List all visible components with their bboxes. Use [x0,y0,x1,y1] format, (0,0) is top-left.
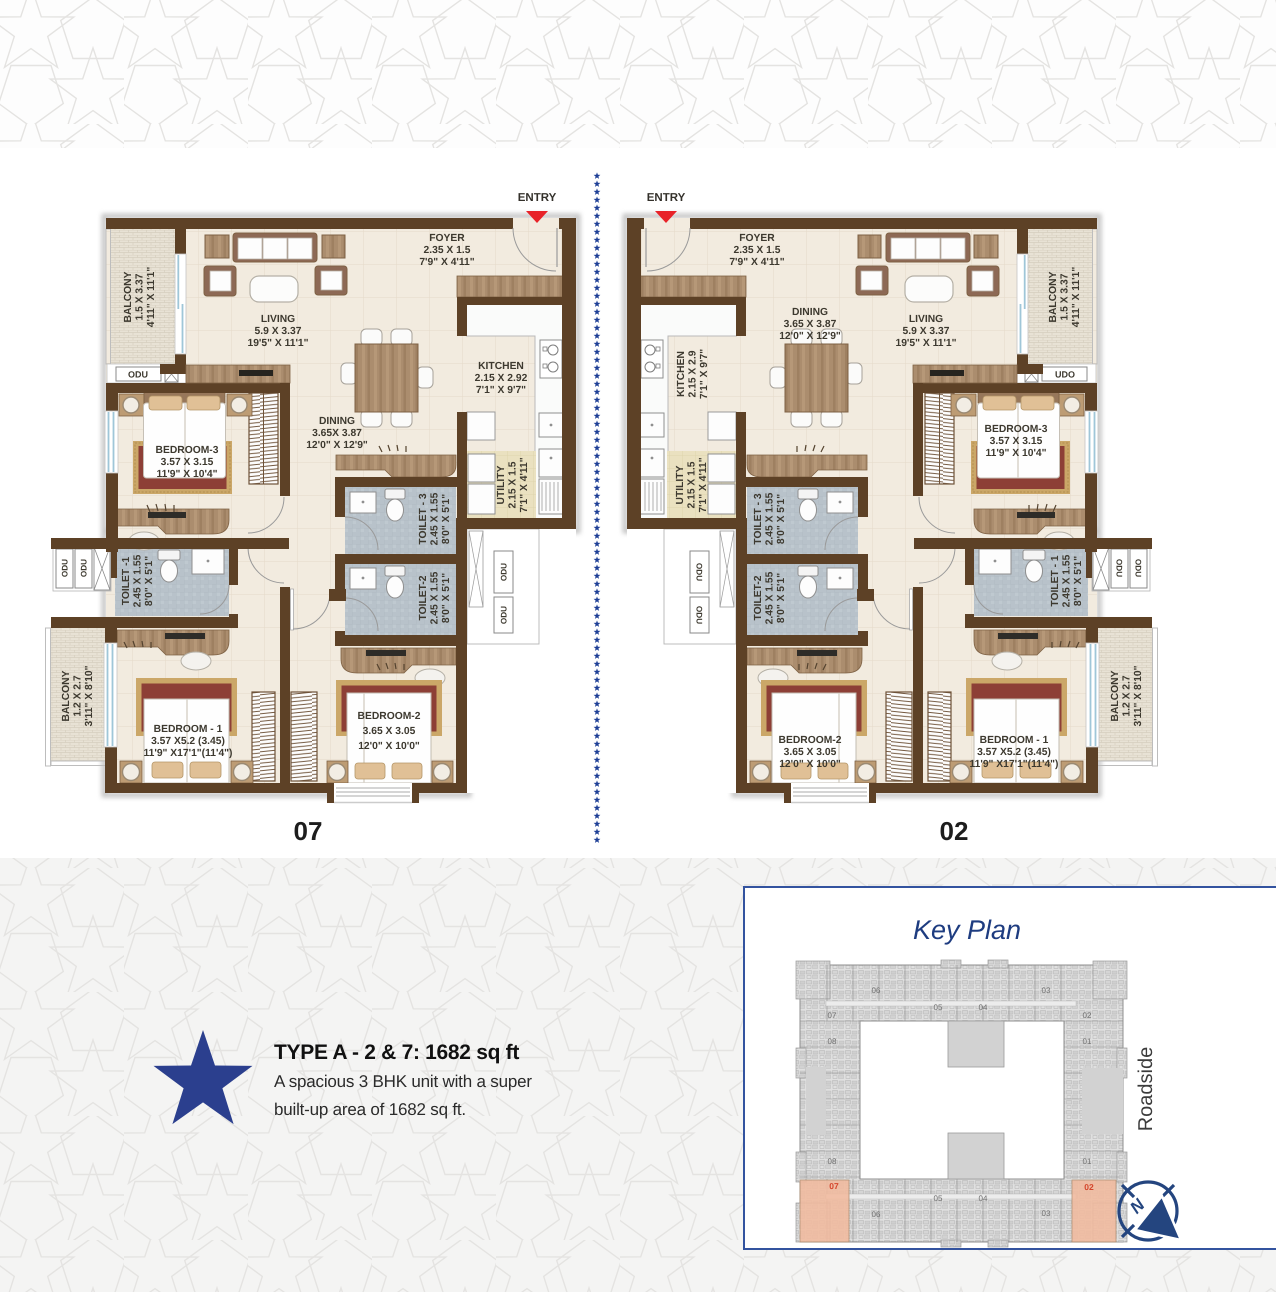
svg-text:2.45 X 1.55: 2.45 X 1.55 [765,571,776,624]
svg-text:4'11" X 11'1": 4'11" X 11'1" [1071,267,1082,328]
svg-text:02: 02 [1083,1011,1092,1020]
svg-text:7'9" X 4'11": 7'9" X 4'11" [729,257,784,268]
svg-text:KITCHEN: KITCHEN [676,351,687,397]
svg-text:02: 02 [940,816,969,846]
svg-text:ODU: ODU [80,559,89,577]
svg-text:BEDROOM-2: BEDROOM-2 [358,711,421,722]
svg-text:TOILET - 1: TOILET - 1 [1050,555,1061,607]
svg-text:ODU: ODU [1114,559,1123,577]
svg-text:UDO: UDO [1055,370,1075,380]
svg-text:BALCONY: BALCONY [61,670,72,721]
svg-text:3.57 X5.2 (3.45): 3.57 X5.2 (3.45) [977,747,1051,758]
svg-text:04: 04 [979,1003,988,1012]
svg-text:ODU: ODU [1133,559,1142,577]
svg-text:2.45 X 1.55: 2.45 X 1.55 [765,492,776,545]
svg-text:2.15 X 1.5: 2.15 X 1.5 [687,461,698,508]
svg-text:3.57 X 3.15: 3.57 X 3.15 [161,457,214,468]
svg-text:3.65 X 3.87: 3.65 X 3.87 [784,319,837,330]
svg-text:ODU: ODU [500,606,509,624]
svg-text:3'11" X 8'10": 3'11" X 8'10" [1133,665,1144,726]
svg-text:7'1" X 9'7": 7'1" X 9'7" [699,349,710,399]
svg-text:12'0" X 10'0": 12'0" X 10'0" [779,759,841,770]
svg-text:11'9" X 10'4": 11'9" X 10'4" [156,469,217,480]
svg-text:FOYER: FOYER [429,233,465,244]
svg-text:2.15 X 1.5: 2.15 X 1.5 [508,461,519,508]
svg-text:BEDROOM-3: BEDROOM-3 [985,424,1048,435]
svg-text:12'0" X 10'0": 12'0" X 10'0" [358,741,420,752]
svg-text:2.45 X 1.55: 2.45 X 1.55 [430,492,441,545]
svg-text:05: 05 [934,1003,943,1012]
svg-text:04: 04 [979,1194,988,1203]
svg-text:08: 08 [828,1157,837,1166]
svg-text:ODU: ODU [128,370,148,380]
svg-text:8'0" X 5'1": 8'0" X 5'1" [441,494,452,544]
svg-text:7'1" X 4'11": 7'1" X 4'11" [698,457,709,512]
svg-text:2.15 X 2.92: 2.15 X 2.92 [475,373,528,384]
svg-text:DINING: DINING [319,416,355,427]
svg-text:ENTRY: ENTRY [647,192,686,204]
svg-text:ODU: ODU [61,559,70,577]
svg-text:UTILITY: UTILITY [675,465,686,504]
svg-text:7'9" X 4'11": 7'9" X 4'11" [419,257,474,268]
svg-text:ODU: ODU [694,606,703,624]
svg-text:8'0" X 5'1": 8'0" X 5'1" [441,573,452,623]
svg-text:19'5" X 11'1": 19'5" X 11'1" [895,338,956,349]
svg-text:BALCONY: BALCONY [123,271,134,322]
svg-text:7'1" X 4'11": 7'1" X 4'11" [519,457,530,512]
svg-text:4'11" X 11'1": 4'11" X 11'1" [146,267,157,328]
svg-text:Key Plan: Key Plan [913,915,1021,945]
svg-text:7'1" X 9'7": 7'1" X 9'7" [476,385,526,396]
svg-text:2.45 X 1.55: 2.45 X 1.55 [430,571,441,624]
svg-text:LIVING: LIVING [261,314,295,325]
svg-text:UTILITY: UTILITY [496,465,507,504]
svg-text:LIVING: LIVING [909,314,943,325]
svg-text:ODU: ODU [500,563,509,581]
svg-text:3.65X 3.87: 3.65X 3.87 [312,428,362,439]
svg-text:8'0" X 5'1": 8'0" X 5'1" [144,556,155,606]
svg-text:08: 08 [828,1037,837,1046]
svg-text:TOILET -1: TOILET -1 [121,557,132,606]
svg-text:TOILET-2: TOILET-2 [753,575,764,620]
svg-text:BEDROOM-3: BEDROOM-3 [156,445,219,456]
svg-text:03: 03 [1042,1209,1051,1218]
svg-text:1.2 X 2.7: 1.2 X 2.7 [73,675,84,716]
svg-text:1.5 X 3.37: 1.5 X 3.37 [1060,273,1071,320]
svg-text:06: 06 [872,986,881,995]
svg-text:3'11" X 8'10": 3'11" X 8'10" [84,665,95,726]
svg-text:8'0" X 5'1": 8'0" X 5'1" [1073,556,1084,606]
svg-text:3.65 X 3.05: 3.65 X 3.05 [363,726,416,737]
svg-text:BALCONY: BALCONY [1110,670,1121,721]
svg-text:2.35 X 1.5: 2.35 X 1.5 [734,245,781,256]
svg-text:19'5" X 11'1": 19'5" X 11'1" [247,338,308,349]
svg-text:8'0" X 5'1": 8'0" X 5'1" [776,573,787,623]
svg-text:06: 06 [872,1210,881,1219]
svg-text:2.45 X 1.55: 2.45 X 1.55 [133,554,144,607]
svg-text:BEDROOM-2: BEDROOM-2 [779,735,842,746]
svg-text:Roadside: Roadside [1135,1047,1157,1132]
svg-text:1.5 X 3.37: 1.5 X 3.37 [135,273,146,320]
svg-text:2.45 X 1.55: 2.45 X 1.55 [1062,554,1073,607]
svg-text:07: 07 [828,1011,837,1020]
svg-text:11'9" X17'1"(11'4"): 11'9" X17'1"(11'4") [144,748,233,759]
svg-text:built-up area of 1682 sq ft.: built-up area of 1682 sq ft. [274,1100,466,1119]
svg-text:3.57 X5.2 (3.45): 3.57 X5.2 (3.45) [151,736,225,747]
svg-text:07: 07 [829,1181,839,1191]
svg-text:11'9" X17'1"(11'4"): 11'9" X17'1"(11'4") [970,759,1059,770]
svg-text:TOILET - 3: TOILET - 3 [753,493,764,545]
svg-text:07: 07 [294,816,323,846]
svg-text:2.35 X 1.5: 2.35 X 1.5 [424,245,471,256]
svg-text:BALCONY: BALCONY [1048,271,1059,322]
svg-text:BEDROOM - 1: BEDROOM - 1 [154,724,223,735]
svg-text:2.15 X 2.9: 2.15 X 2.9 [688,350,699,397]
svg-text:DINING: DINING [792,307,828,318]
svg-text:5.9 X 3.37: 5.9 X 3.37 [255,326,302,337]
svg-text:1.2 X 2.7: 1.2 X 2.7 [1122,675,1133,716]
svg-text:01: 01 [1083,1037,1092,1046]
svg-text:12'0" X 12'9": 12'0" X 12'9" [779,331,841,342]
svg-text:11'9" X 10'4": 11'9" X 10'4" [985,448,1046,459]
svg-text:05: 05 [934,1194,943,1203]
svg-text:FOYER: FOYER [739,233,775,244]
svg-text:03: 03 [1042,986,1051,995]
svg-text:3.65 X 3.05: 3.65 X 3.05 [784,747,837,758]
svg-text:KITCHEN: KITCHEN [478,361,524,372]
svg-text:TYPE A - 2 & 7: 1682 sq ft: TYPE A - 2 & 7: 1682 sq ft [274,1041,519,1064]
svg-text:ENTRY: ENTRY [518,192,557,204]
svg-text:12'0" X 12'9": 12'0" X 12'9" [306,440,368,451]
svg-text:ODU: ODU [694,563,703,581]
svg-text:BEDROOM - 1: BEDROOM - 1 [980,735,1049,746]
svg-text:8'0" X 5'1": 8'0" X 5'1" [776,494,787,544]
svg-text:3.57 X 3.15: 3.57 X 3.15 [990,436,1043,447]
svg-text:02: 02 [1084,1182,1094,1192]
svg-text:01: 01 [1083,1157,1092,1166]
svg-text:TOILET - 3: TOILET - 3 [418,493,429,545]
svg-text:A spacious 3 BHK unit with a s: A spacious 3 BHK unit with a super [274,1072,532,1091]
svg-text:5.9 X 3.37: 5.9 X 3.37 [903,326,950,337]
svg-text:TOILET-2: TOILET-2 [418,575,429,620]
